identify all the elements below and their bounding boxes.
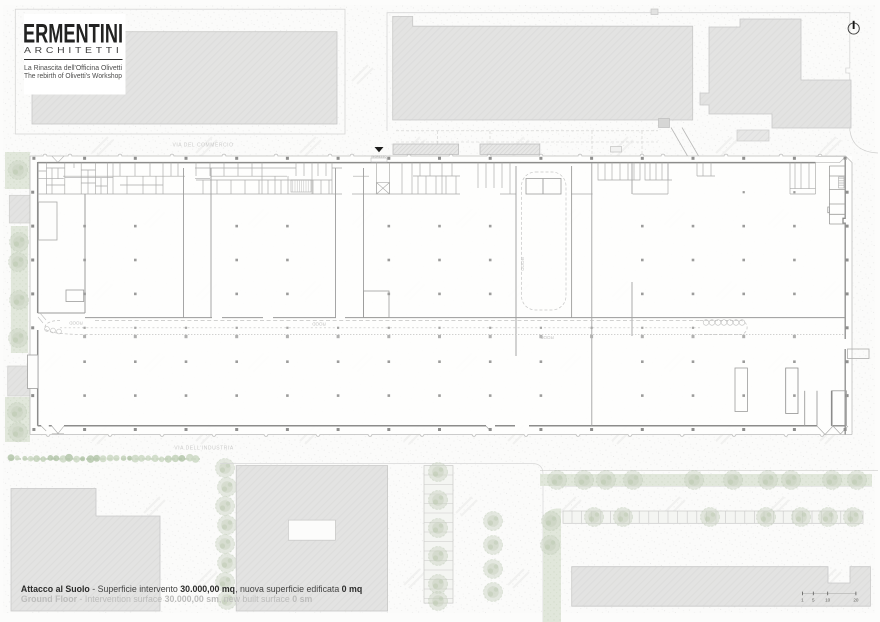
svg-text:The rebirth of Olivetti's Work: The rebirth of Olivetti's Workshop <box>24 73 122 80</box>
svg-text:ARCHITETTI: ARCHITETTI <box>24 45 123 55</box>
svg-text:ROOD: ROOD <box>68 321 82 326</box>
svg-text:10: 10 <box>825 598 831 603</box>
svg-text:ROOD: ROOD <box>520 257 525 271</box>
svg-text:ROOD: ROOD <box>539 335 553 340</box>
svg-text:VIA DEL COMMERCIO: VIA DEL COMMERCIO <box>172 143 233 149</box>
svg-text:Attacco al Suolo - Superficie: Attacco al Suolo - Superficie intervento… <box>21 584 362 594</box>
svg-text:ROOD: ROOD <box>311 322 325 327</box>
svg-text:La Rinascita dell'Officina Oli: La Rinascita dell'Officina Olivetti <box>24 65 122 72</box>
svg-text:5: 5 <box>812 598 815 603</box>
svg-text:VIA DELL'INDUSTRIA: VIA DELL'INDUSTRIA <box>174 446 234 452</box>
svg-text:Ground Floor - Intervention su: Ground Floor - Intervention surface 30.0… <box>21 594 313 604</box>
svg-text:1: 1 <box>801 598 804 603</box>
svg-text:20: 20 <box>853 598 859 603</box>
svg-text:ERMENTINI: ERMENTINI <box>23 18 123 48</box>
